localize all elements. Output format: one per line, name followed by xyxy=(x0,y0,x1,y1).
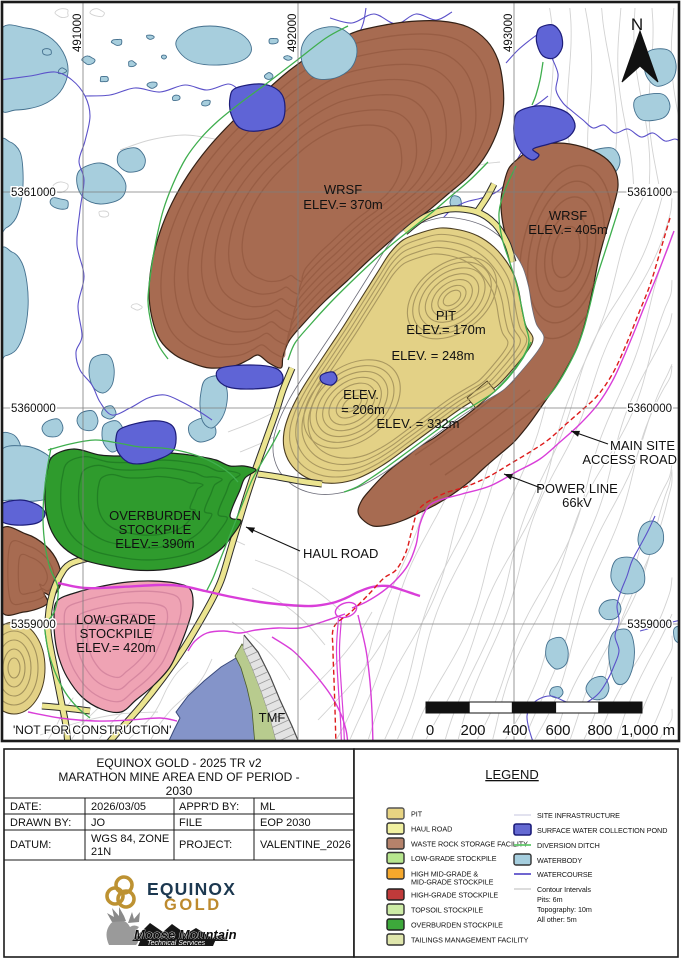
svg-text:5361000: 5361000 xyxy=(627,187,672,199)
svg-text:MID-GRADE STOCKPILE: MID-GRADE STOCKPILE xyxy=(411,878,494,887)
svg-text:PIT: PIT xyxy=(436,308,456,323)
svg-text:200: 200 xyxy=(460,722,485,739)
svg-text:600: 600 xyxy=(545,722,570,739)
svg-text:DIVERSION DITCH: DIVERSION DITCH xyxy=(537,841,600,850)
svg-text:WATERBODY: WATERBODY xyxy=(537,856,582,865)
svg-text:TAILINGS MANAGEMENT FACILITY: TAILINGS MANAGEMENT FACILITY xyxy=(411,936,529,945)
svg-text:POWER LINE: POWER LINE xyxy=(536,481,618,496)
svg-text:HIGH-GRADE STOCKPILE: HIGH-GRADE STOCKPILE xyxy=(411,891,498,900)
svg-text:FILE: FILE xyxy=(179,817,202,829)
svg-text:Topography: 10m: Topography: 10m xyxy=(537,905,592,914)
svg-text:ELEV.= 170m: ELEV.= 170m xyxy=(406,322,485,337)
svg-text:WATERCOURSE: WATERCOURSE xyxy=(537,870,593,879)
svg-text:WRSF: WRSF xyxy=(549,208,587,223)
svg-text:N: N xyxy=(631,15,643,34)
svg-text:LOW-GRADE: LOW-GRADE xyxy=(76,612,156,627)
svg-text:1,000 m: 1,000 m xyxy=(621,722,675,739)
svg-text:EQUINOX GOLD - 2025 TR v2: EQUINOX GOLD - 2025 TR v2 xyxy=(96,756,261,770)
svg-text:= 206m: = 206m xyxy=(341,402,385,417)
svg-text:OVERBURDEN STOCKPILE: OVERBURDEN STOCKPILE xyxy=(411,921,503,930)
svg-text:PIT: PIT xyxy=(411,810,423,819)
svg-text:5360000: 5360000 xyxy=(11,403,56,415)
svg-text:ELEV.= 370m: ELEV.= 370m xyxy=(303,197,382,212)
svg-text:66kV: 66kV xyxy=(562,495,592,510)
svg-text:SITE INFRASTRUCTURE: SITE INFRASTRUCTURE xyxy=(537,811,620,820)
svg-text:OVERBURDEN: OVERBURDEN xyxy=(109,508,201,523)
svg-text:ELEV.: ELEV. xyxy=(343,387,379,402)
svg-text:APPR'D BY:: APPR'D BY: xyxy=(179,801,239,813)
svg-text:WASTE ROCK STORAGE FACILITY: WASTE ROCK STORAGE FACILITY xyxy=(411,840,528,849)
svg-text:All other: 5m: All other: 5m xyxy=(537,915,577,924)
svg-text:STOCKPILE: STOCKPILE xyxy=(80,626,153,641)
svg-text:Technical Services: Technical Services xyxy=(147,940,206,947)
svg-text:TOPSOIL STOCKPILE: TOPSOIL STOCKPILE xyxy=(411,906,483,915)
svg-text:ELEV.= 390m: ELEV.= 390m xyxy=(115,536,194,551)
svg-text:ACCESS ROAD: ACCESS ROAD xyxy=(582,452,677,467)
svg-text:5359000: 5359000 xyxy=(627,619,672,631)
svg-text:491000: 491000 xyxy=(72,14,84,52)
svg-text:ELEV. = 332m: ELEV. = 332m xyxy=(377,416,460,431)
svg-text:DATUM:: DATUM: xyxy=(10,839,51,851)
svg-text:493000: 493000 xyxy=(503,14,515,52)
svg-text:PROJECT:: PROJECT: xyxy=(179,839,232,851)
svg-text:DRAWN BY:: DRAWN BY: xyxy=(10,817,71,829)
svg-text:5361000: 5361000 xyxy=(11,187,56,199)
svg-text:STOCKPILE: STOCKPILE xyxy=(119,522,192,537)
svg-text:HAUL ROAD: HAUL ROAD xyxy=(303,546,378,561)
svg-text:Contour Intervals: Contour Intervals xyxy=(537,885,591,894)
svg-text:HAUL ROAD: HAUL ROAD xyxy=(411,825,452,834)
svg-text:ELEV.= 420m: ELEV.= 420m xyxy=(76,640,155,655)
svg-text:VALENTINE_2026: VALENTINE_2026 xyxy=(260,839,351,851)
svg-text:5360000: 5360000 xyxy=(627,403,672,415)
svg-text:800: 800 xyxy=(587,722,612,739)
svg-text:MAIN SITE: MAIN SITE xyxy=(610,438,675,453)
svg-text:5359000: 5359000 xyxy=(11,619,56,631)
svg-text:SURFACE WATER COLLECTION POND: SURFACE WATER COLLECTION POND xyxy=(537,826,667,835)
svg-text:400: 400 xyxy=(502,722,527,739)
svg-text:492000: 492000 xyxy=(287,14,299,52)
svg-text:2030: 2030 xyxy=(166,784,193,798)
svg-text:JO: JO xyxy=(91,817,106,829)
svg-text:TMF: TMF xyxy=(259,710,286,725)
svg-text:21N: 21N xyxy=(91,846,111,858)
svg-text:GOLD: GOLD xyxy=(164,896,222,914)
svg-text:LOW-GRADE STOCKPILE: LOW-GRADE STOCKPILE xyxy=(411,854,497,863)
svg-text:ML: ML xyxy=(260,801,275,813)
svg-text:'NOT FOR CONSTRUCTION': 'NOT FOR CONSTRUCTION' xyxy=(13,723,171,737)
svg-text:DATE:: DATE: xyxy=(10,801,42,813)
svg-text:WRSF: WRSF xyxy=(324,182,362,197)
svg-text:0: 0 xyxy=(426,722,434,739)
svg-text:2026/03/05: 2026/03/05 xyxy=(91,801,146,813)
svg-text:ELEV. = 248m: ELEV. = 248m xyxy=(392,348,475,363)
svg-text:MARATHON MINE AREA END OF PERI: MARATHON MINE AREA END OF PERIOD - xyxy=(58,770,299,784)
svg-text:Pits: 6m: Pits: 6m xyxy=(537,895,563,904)
svg-text:EOP 2030: EOP 2030 xyxy=(260,817,311,829)
svg-text:ELEV.= 405m: ELEV.= 405m xyxy=(528,222,607,237)
svg-text:WGS 84, ZONE: WGS 84, ZONE xyxy=(91,833,169,845)
svg-text:LEGEND: LEGEND xyxy=(485,767,538,782)
